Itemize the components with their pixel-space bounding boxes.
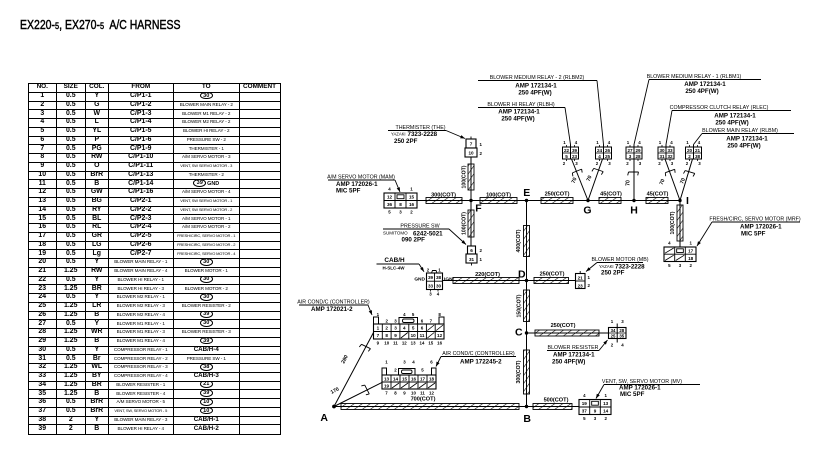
svg-text:3: 3 — [394, 319, 397, 324]
svg-text:1: 1 — [385, 360, 388, 365]
svg-text:H: H — [630, 204, 638, 216]
svg-text:100(COT): 100(COT) — [462, 212, 468, 235]
svg-text:7: 7 — [377, 333, 380, 338]
svg-text:1: 1 — [410, 187, 413, 192]
svg-text:1: 1 — [438, 268, 441, 273]
svg-text:GND: GND — [414, 277, 425, 283]
svg-text:19: 19 — [582, 401, 588, 406]
svg-text:17: 17 — [420, 376, 426, 381]
svg-text:2: 2 — [611, 343, 614, 348]
svg-text:3: 3 — [594, 416, 597, 421]
svg-text:16: 16 — [411, 376, 417, 381]
svg-text:15: 15 — [409, 195, 415, 200]
svg-text:31: 31 — [469, 257, 475, 262]
svg-text:A: A — [320, 412, 328, 424]
svg-text:4: 4 — [388, 187, 391, 192]
svg-text:4: 4 — [598, 154, 601, 159]
svg-text:1: 1 — [480, 257, 483, 262]
svg-text:10: 10 — [384, 341, 389, 346]
svg-text:3: 3 — [608, 161, 611, 166]
svg-text:AMP 172134-1: AMP 172134-1 — [714, 113, 756, 120]
svg-text:2: 2 — [410, 210, 413, 215]
svg-text:2: 2 — [394, 368, 397, 373]
svg-text:13: 13 — [411, 341, 416, 346]
svg-text:24: 24 — [597, 148, 603, 153]
svg-text:1: 1 — [596, 140, 599, 145]
svg-text:1: 1 — [377, 326, 380, 331]
svg-text:3: 3 — [621, 319, 624, 324]
svg-text:15: 15 — [402, 376, 408, 381]
svg-text:MIC 5PF: MIC 5PF — [741, 231, 766, 238]
svg-text:2: 2 — [688, 154, 691, 159]
svg-text:23: 23 — [578, 283, 584, 288]
svg-text:16: 16 — [437, 341, 442, 346]
svg-text:MIC 5PF: MIC 5PF — [620, 391, 645, 398]
svg-text:70: 70 — [571, 177, 579, 185]
svg-text:8: 8 — [438, 312, 441, 317]
svg-text:4: 4 — [621, 343, 624, 348]
svg-text:28: 28 — [635, 154, 641, 159]
svg-text:1: 1 — [659, 140, 662, 145]
svg-text:SUMITOMO: SUMITOMO — [383, 231, 408, 236]
svg-text:300(COT): 300(COT) — [516, 360, 522, 383]
svg-text:5: 5 — [565, 154, 568, 159]
svg-text:5: 5 — [421, 368, 424, 373]
svg-text:70: 70 — [679, 177, 687, 185]
svg-text:45(COT): 45(COT) — [600, 192, 622, 198]
svg-text:4: 4 — [575, 140, 578, 145]
svg-text:IGN: IGN — [444, 277, 453, 283]
svg-text:4: 4 — [437, 292, 440, 297]
svg-text:26: 26 — [605, 148, 611, 153]
svg-text:H-SLC-4W: H-SLC-4W — [383, 266, 406, 271]
svg-text:31: 31 — [659, 154, 665, 159]
svg-text:5: 5 — [668, 263, 671, 268]
svg-text:3: 3 — [639, 161, 642, 166]
svg-text:7: 7 — [470, 142, 473, 147]
svg-text:25: 25 — [611, 334, 616, 339]
svg-text:3: 3 — [399, 210, 402, 215]
svg-text:2: 2 — [480, 151, 483, 156]
svg-text:3: 3 — [679, 263, 682, 268]
svg-text:2: 2 — [686, 161, 689, 166]
svg-text:250 4PF(W): 250 4PF(W) — [552, 359, 585, 366]
svg-text:9: 9 — [594, 409, 597, 414]
svg-text:21: 21 — [578, 275, 584, 280]
svg-text:12: 12 — [429, 391, 434, 396]
svg-text:70: 70 — [586, 175, 594, 183]
svg-text:30: 30 — [659, 148, 665, 153]
svg-text:AMP 172021-2: AMP 172021-2 — [311, 306, 353, 313]
svg-text:150(COT): 150(COT) — [517, 294, 523, 317]
svg-text:18: 18 — [429, 376, 435, 381]
svg-text:8: 8 — [399, 202, 402, 207]
svg-text:11: 11 — [420, 333, 425, 338]
svg-text:250 4PF(W): 250 4PF(W) — [518, 90, 551, 97]
svg-text:D: D — [518, 268, 526, 280]
svg-text:4: 4 — [668, 241, 671, 246]
svg-text:E: E — [523, 187, 530, 199]
svg-text:500(COT): 500(COT) — [544, 398, 569, 404]
svg-text:7: 7 — [385, 391, 388, 396]
svg-text:17: 17 — [688, 249, 694, 254]
svg-text:1: 1 — [611, 319, 614, 324]
svg-text:250(COT): 250(COT) — [540, 272, 565, 278]
svg-text:21: 21 — [695, 148, 701, 153]
svg-text:2: 2 — [658, 161, 661, 166]
svg-text:2: 2 — [385, 319, 388, 324]
svg-text:2: 2 — [563, 161, 566, 166]
svg-text:1: 1 — [480, 142, 483, 147]
svg-text:10: 10 — [468, 151, 474, 156]
svg-text:12: 12 — [402, 341, 407, 346]
svg-text:3: 3 — [629, 154, 632, 159]
svg-text:32: 32 — [667, 154, 673, 159]
svg-text:280: 280 — [340, 354, 349, 365]
svg-text:23: 23 — [572, 154, 578, 159]
svg-text:400(COT): 400(COT) — [516, 229, 522, 252]
svg-text:250(COT): 250(COT) — [551, 323, 576, 329]
svg-text:11: 11 — [420, 391, 425, 396]
svg-text:3: 3 — [394, 326, 397, 331]
svg-text:4: 4 — [403, 326, 406, 331]
svg-text:B: B — [523, 413, 531, 425]
svg-text:AMP 172245-2: AMP 172245-2 — [460, 359, 502, 366]
svg-text:70: 70 — [626, 180, 632, 186]
svg-text:3: 3 — [429, 292, 432, 297]
svg-text:2: 2 — [427, 268, 430, 273]
svg-text:7323-2228: 7323-2228 — [408, 131, 438, 138]
svg-text:300(COT): 300(COT) — [431, 193, 456, 199]
svg-text:2: 2 — [596, 161, 599, 166]
svg-text:1: 1 — [588, 275, 591, 280]
svg-text:2: 2 — [689, 263, 692, 268]
svg-text:25: 25 — [605, 154, 611, 159]
svg-text:5: 5 — [388, 210, 391, 215]
svg-text:13: 13 — [384, 376, 390, 381]
svg-text:2: 2 — [604, 416, 607, 421]
svg-text:12: 12 — [387, 195, 393, 200]
svg-text:15: 15 — [428, 341, 433, 346]
svg-text:2: 2 — [480, 248, 483, 253]
svg-text:36: 36 — [387, 202, 393, 207]
svg-text:14: 14 — [393, 376, 399, 381]
svg-text:4: 4 — [608, 140, 611, 145]
svg-text:AMP 172134-1: AMP 172134-1 — [553, 352, 595, 359]
svg-text:090 2PF: 090 2PF — [402, 237, 426, 244]
svg-text:3: 3 — [698, 161, 701, 166]
svg-text:AMP 172134-1: AMP 172134-1 — [498, 109, 540, 116]
svg-text:20: 20 — [687, 148, 693, 153]
svg-text:9: 9 — [377, 341, 380, 346]
svg-text:13: 13 — [603, 401, 609, 406]
svg-text:YAZAKI: YAZAKI — [599, 264, 614, 269]
svg-text:4: 4 — [698, 140, 701, 145]
svg-text:AMP 172026-1: AMP 172026-1 — [740, 224, 782, 231]
svg-text:1: 1 — [604, 393, 607, 398]
svg-text:AMP 172134-1: AMP 172134-1 — [515, 83, 557, 90]
svg-text:5: 5 — [412, 326, 415, 331]
svg-text:6: 6 — [421, 319, 424, 324]
svg-text:1: 1 — [377, 312, 380, 317]
svg-text:27: 27 — [627, 148, 633, 153]
svg-text:14: 14 — [603, 409, 609, 414]
svg-text:39: 39 — [428, 275, 434, 280]
svg-text:34: 34 — [611, 328, 616, 333]
svg-text:3: 3 — [575, 161, 578, 166]
svg-text:4: 4 — [412, 360, 415, 365]
svg-text:29: 29 — [635, 148, 641, 153]
svg-text:28: 28 — [619, 328, 624, 333]
svg-text:220(COT): 220(COT) — [475, 272, 500, 278]
svg-text:18: 18 — [688, 256, 694, 261]
svg-text:37: 37 — [582, 409, 588, 414]
svg-text:1: 1 — [627, 140, 630, 145]
svg-text:19: 19 — [384, 383, 390, 388]
svg-text:5: 5 — [412, 312, 415, 317]
svg-text:35: 35 — [619, 334, 624, 339]
svg-text:100(COT): 100(COT) — [462, 165, 468, 188]
svg-text:250 4PF(W): 250 4PF(W) — [501, 116, 534, 123]
svg-text:8: 8 — [385, 333, 388, 338]
svg-text:5: 5 — [583, 416, 586, 421]
svg-text:9: 9 — [394, 333, 397, 338]
svg-text:1: 1 — [689, 241, 692, 246]
svg-text:YAZAKI: YAZAKI — [391, 132, 406, 137]
svg-text:700(COT): 700(COT) — [411, 397, 436, 403]
svg-text:30: 30 — [436, 283, 442, 288]
svg-text:38: 38 — [695, 154, 701, 159]
svg-text:14: 14 — [420, 341, 425, 346]
svg-text:4: 4 — [583, 393, 586, 398]
svg-text:4: 4 — [638, 140, 641, 145]
svg-text:10: 10 — [411, 333, 417, 338]
svg-text:7: 7 — [430, 319, 433, 324]
svg-text:170: 170 — [330, 386, 341, 395]
svg-text:100(COT): 100(COT) — [670, 211, 676, 234]
svg-text:C: C — [515, 327, 523, 339]
svg-text:38: 38 — [436, 275, 442, 280]
svg-text:250(COT): 250(COT) — [545, 192, 570, 198]
svg-text:2: 2 — [385, 326, 388, 331]
svg-text:4: 4 — [403, 312, 406, 317]
svg-text:2: 2 — [626, 161, 629, 166]
svg-text:6: 6 — [430, 360, 433, 365]
svg-text:45(COT): 45(COT) — [647, 192, 669, 198]
svg-text:6: 6 — [421, 326, 424, 331]
svg-text:2: 2 — [588, 283, 591, 288]
svg-text:33: 33 — [667, 148, 673, 153]
svg-text:16: 16 — [409, 202, 415, 207]
svg-text:70: 70 — [659, 178, 667, 186]
svg-text:22: 22 — [564, 148, 570, 153]
svg-text:3: 3 — [403, 360, 406, 365]
svg-text:I: I — [686, 195, 689, 207]
svg-text:12: 12 — [437, 333, 443, 338]
svg-text:100(COT): 100(COT) — [486, 193, 511, 199]
svg-text:250 4PF(W): 250 4PF(W) — [685, 88, 718, 95]
svg-text:CAB/H: CAB/H — [384, 257, 405, 264]
svg-text:250 2PF: 250 2PF — [394, 138, 418, 145]
svg-text:8: 8 — [394, 391, 397, 396]
svg-text:MIC 5PF: MIC 5PF — [336, 187, 361, 194]
svg-text:4: 4 — [670, 140, 673, 145]
svg-text:250 4PF(W): 250 4PF(W) — [715, 120, 748, 127]
svg-text:1: 1 — [563, 140, 566, 145]
svg-text:39: 39 — [572, 148, 578, 153]
svg-text:6: 6 — [470, 248, 473, 253]
svg-text:10: 10 — [411, 391, 416, 396]
svg-text:F: F — [475, 203, 482, 215]
svg-text:AMP 172134-1: AMP 172134-1 — [684, 81, 726, 88]
svg-text:33: 33 — [428, 283, 434, 288]
svg-text:G: G — [583, 204, 591, 216]
svg-text:1: 1 — [686, 140, 689, 145]
svg-text:9: 9 — [403, 391, 406, 396]
svg-text:AMP 172134-1: AMP 172134-1 — [726, 136, 768, 143]
svg-text:11: 11 — [393, 341, 398, 346]
svg-text:250 2PF: 250 2PF — [601, 270, 625, 277]
svg-text:3: 3 — [671, 161, 674, 166]
svg-text:250 4PF(W): 250 4PF(W) — [727, 143, 760, 150]
